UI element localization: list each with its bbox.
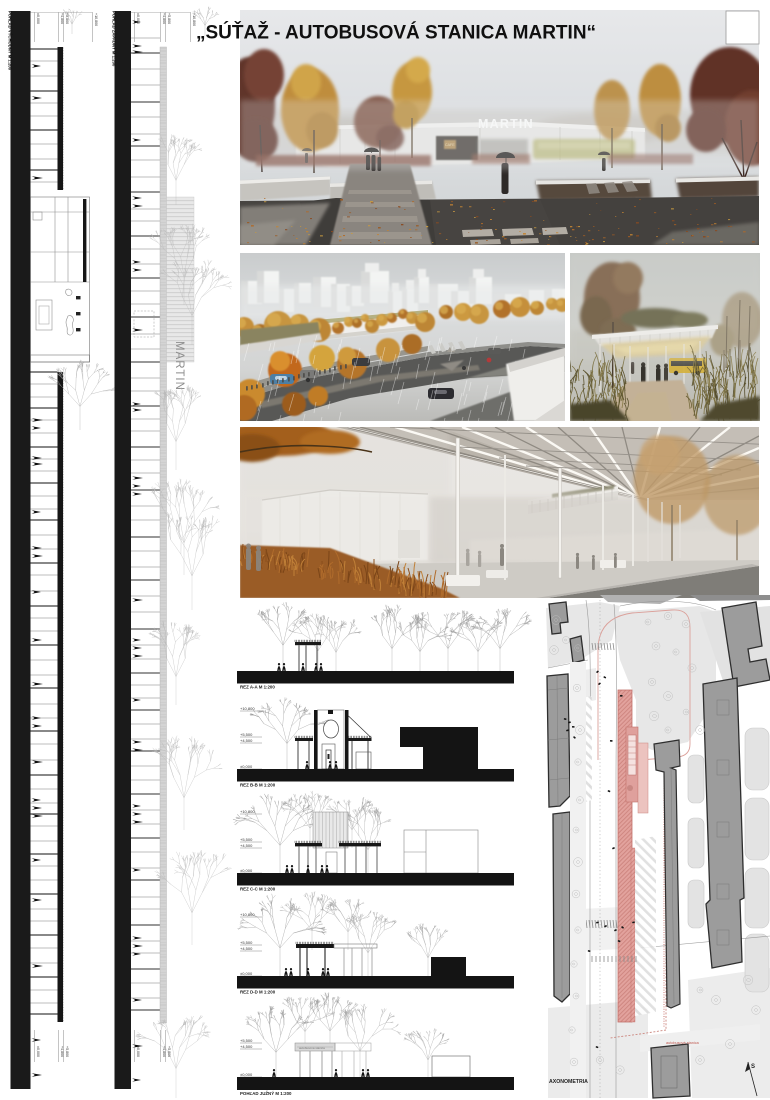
svg-text:S: S [751,1064,755,1070]
svg-text:+4,500: +4,500 [240,946,253,951]
svg-text:MARTIN: MARTIN [173,341,185,391]
svg-text:REZ A-A M 1:200: REZ A-A M 1:200 [240,685,275,690]
svg-text:+10,800: +10,800 [94,13,98,26]
svg-text:autobusová stanica: autobusová stanica [666,1041,700,1045]
svg-text:+5,500: +5,500 [240,940,253,945]
svg-text:+5,800: +5,800 [167,1046,171,1057]
svg-text:+10,800: +10,800 [240,912,255,917]
svg-text:+4,500: +4,500 [240,738,253,743]
svg-text:REZ C-C M 1:200: REZ C-C M 1:200 [240,887,276,892]
svg-text:±0,000: ±0,000 [36,1046,40,1057]
svg-text:AXONOMETRIA: AXONOMETRIA [549,1079,588,1085]
svg-text:+5,500: +5,500 [240,732,253,737]
svg-text:+4,500: +4,500 [240,843,253,848]
svg-text:POHĽAD JUŽNÝ M 1:200: POHĽAD JUŽNÝ M 1:200 [240,1091,292,1096]
svg-text:autobusova stanica: autobusova stanica [299,1046,325,1050]
svg-text:REZ D-D M 1:200: REZ D-D M 1:200 [240,990,276,995]
svg-text:±0,000: ±0,000 [240,764,253,769]
svg-text:±0,000: ±0,000 [240,868,253,873]
svg-text:+10,800: +10,800 [240,706,255,711]
svg-text:±0,000: ±0,000 [136,1046,140,1057]
svg-text:+5,500: +5,500 [240,837,253,842]
svg-text:±0,000: ±0,000 [36,13,40,24]
svg-text:+5,500: +5,500 [240,1038,253,1043]
svg-text:±0,000: ±0,000 [240,971,253,976]
svg-text:±0,000: ±0,000 [240,1072,253,1077]
svg-text:REZ B-B M 1:200: REZ B-B M 1:200 [240,783,276,788]
svg-text:+5,800: +5,800 [65,1046,69,1057]
svg-text:+4,500: +4,500 [240,1044,253,1049]
svg-text:+5,800: +5,800 [167,13,171,24]
svg-text:+10,800: +10,800 [240,809,255,814]
svg-text:POHĽAD ZÁPADNÝ M 1:200: POHĽAD ZÁPADNÝ M 1:200 [112,11,117,67]
svg-text:POHĽAD VÝCHODNÝ M 1:200: POHĽAD VÝCHODNÝ M 1:200 [8,11,13,71]
svg-text:„SÚŤAŽ - AUTOBUSOVÁ STANICA MA: „SÚŤAŽ - AUTOBUSOVÁ STANICA MARTIN“ [196,22,596,44]
